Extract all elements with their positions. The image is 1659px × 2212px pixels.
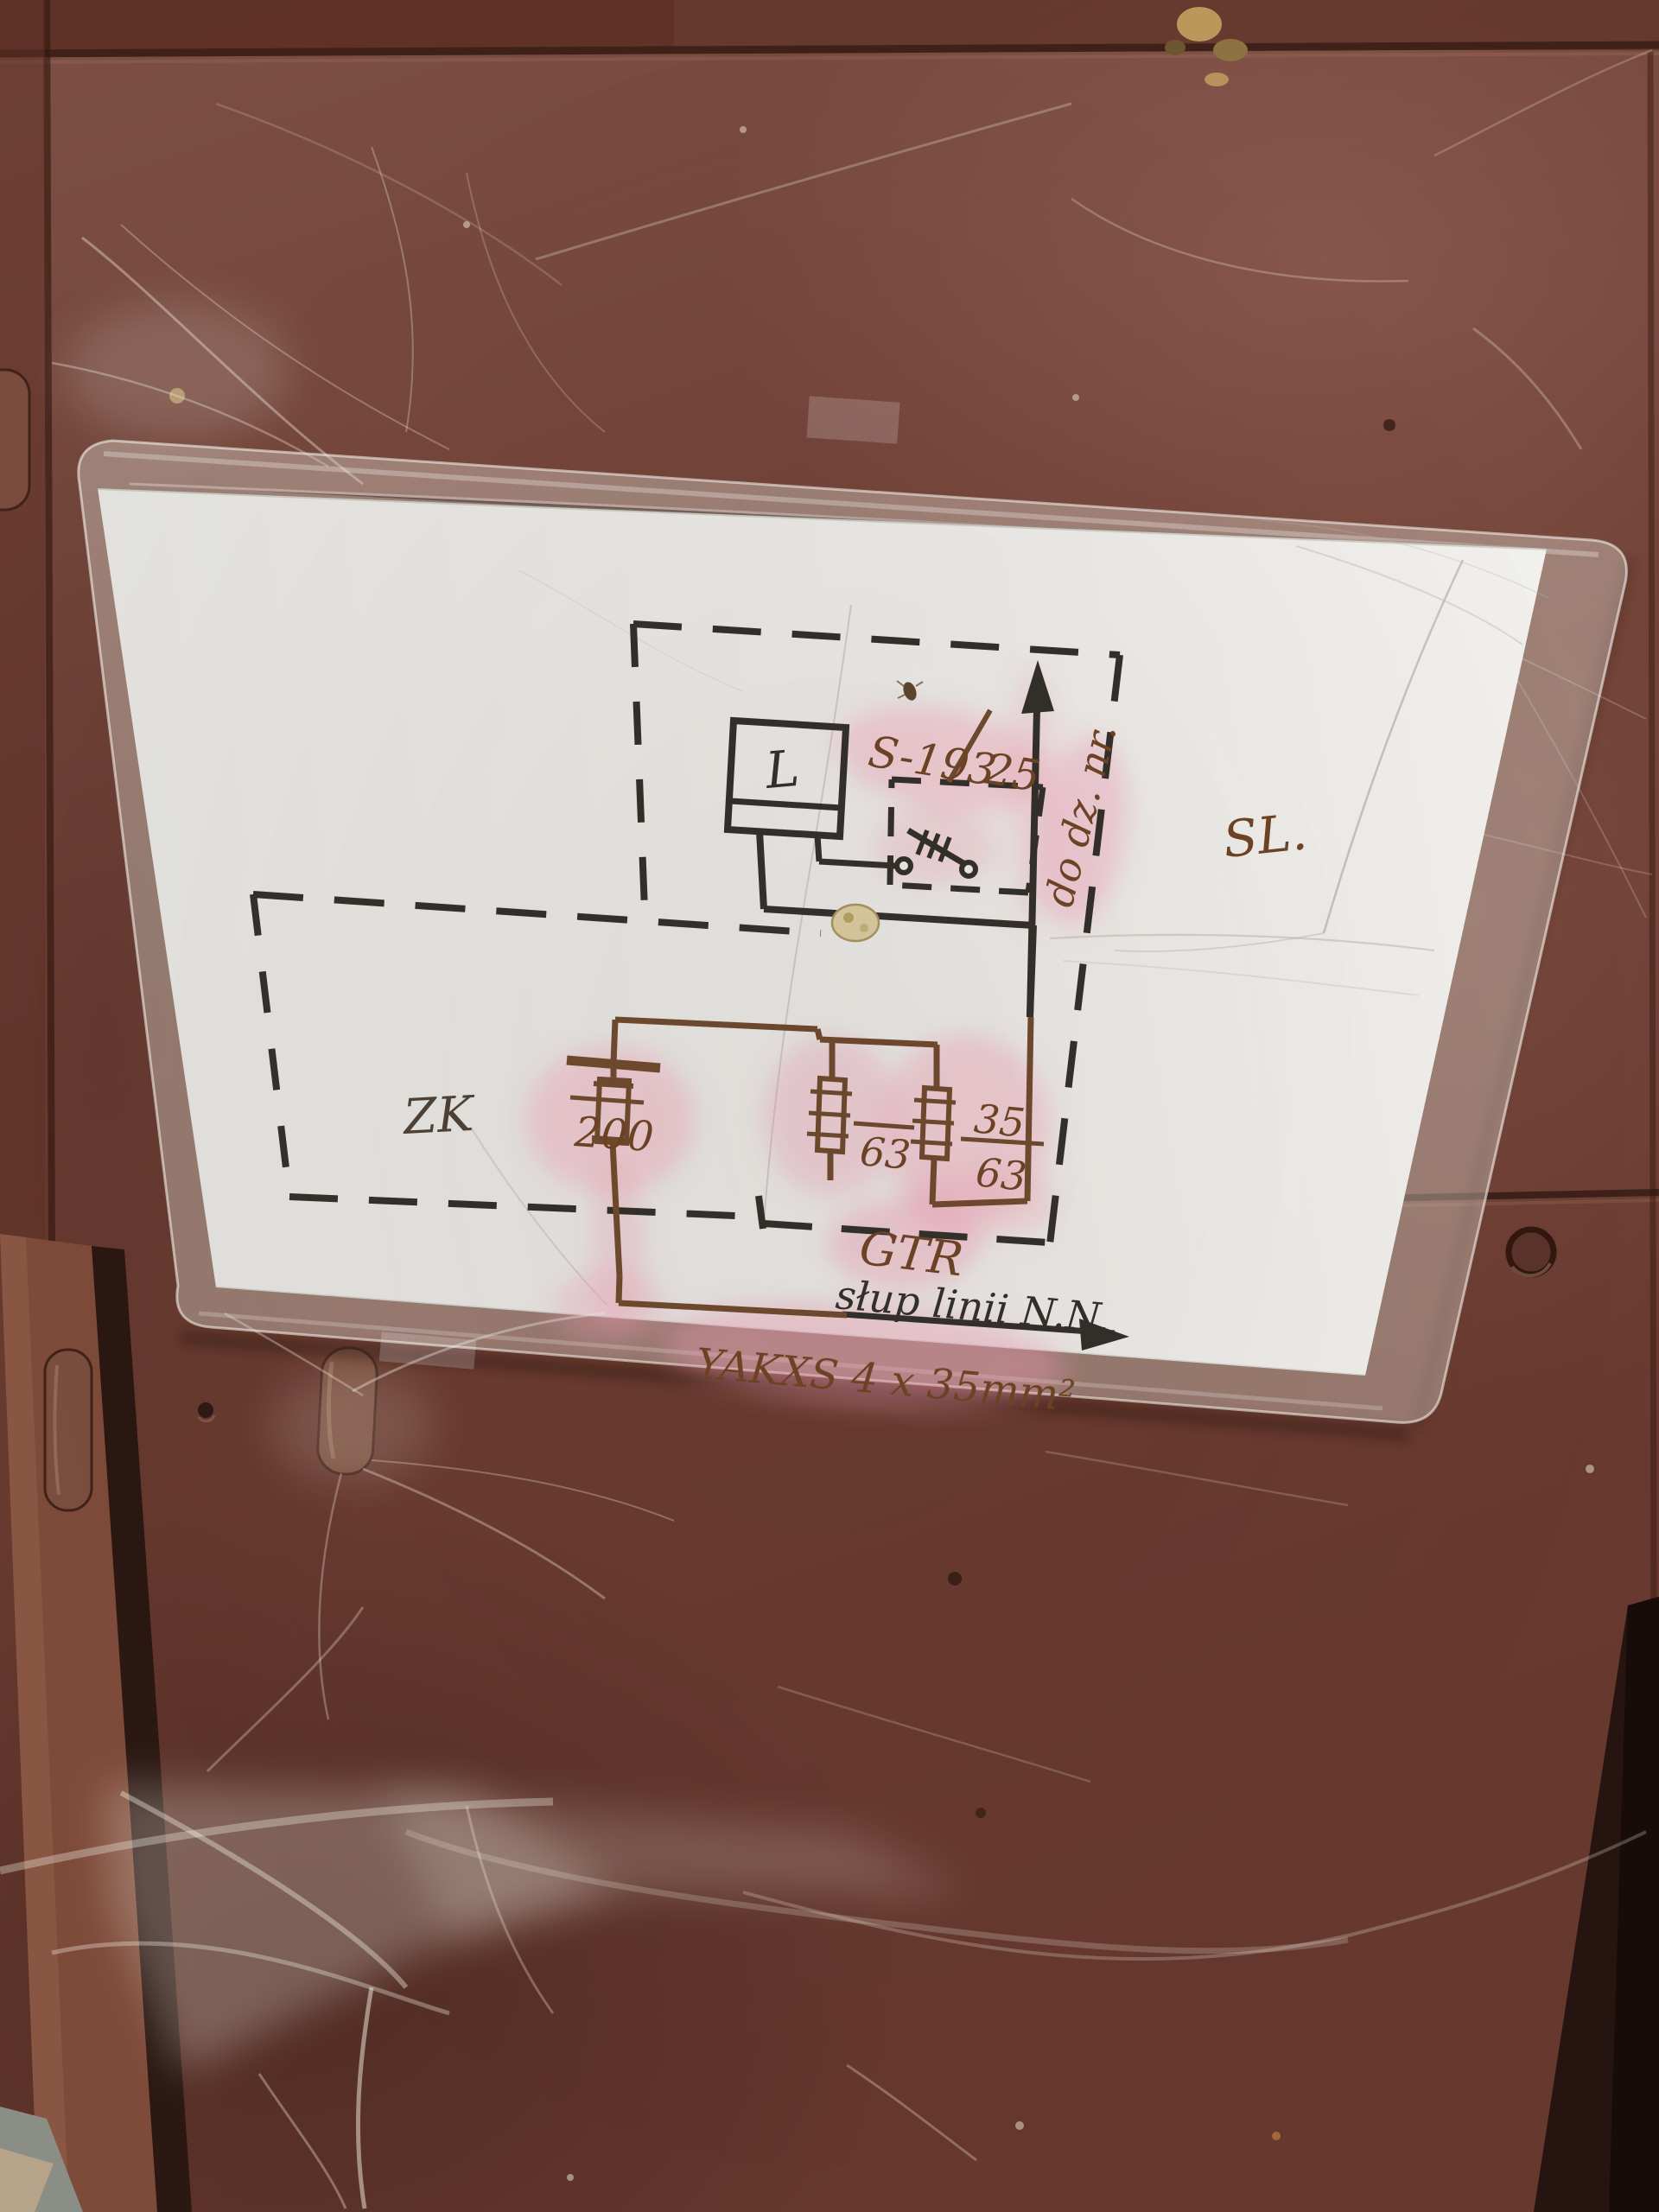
photo-schematic-on-door: L S-193 25 do dz. nr. SL. ZK 200 63 35 6… (0, 0, 1659, 2212)
photo-vignette (0, 0, 1659, 2212)
